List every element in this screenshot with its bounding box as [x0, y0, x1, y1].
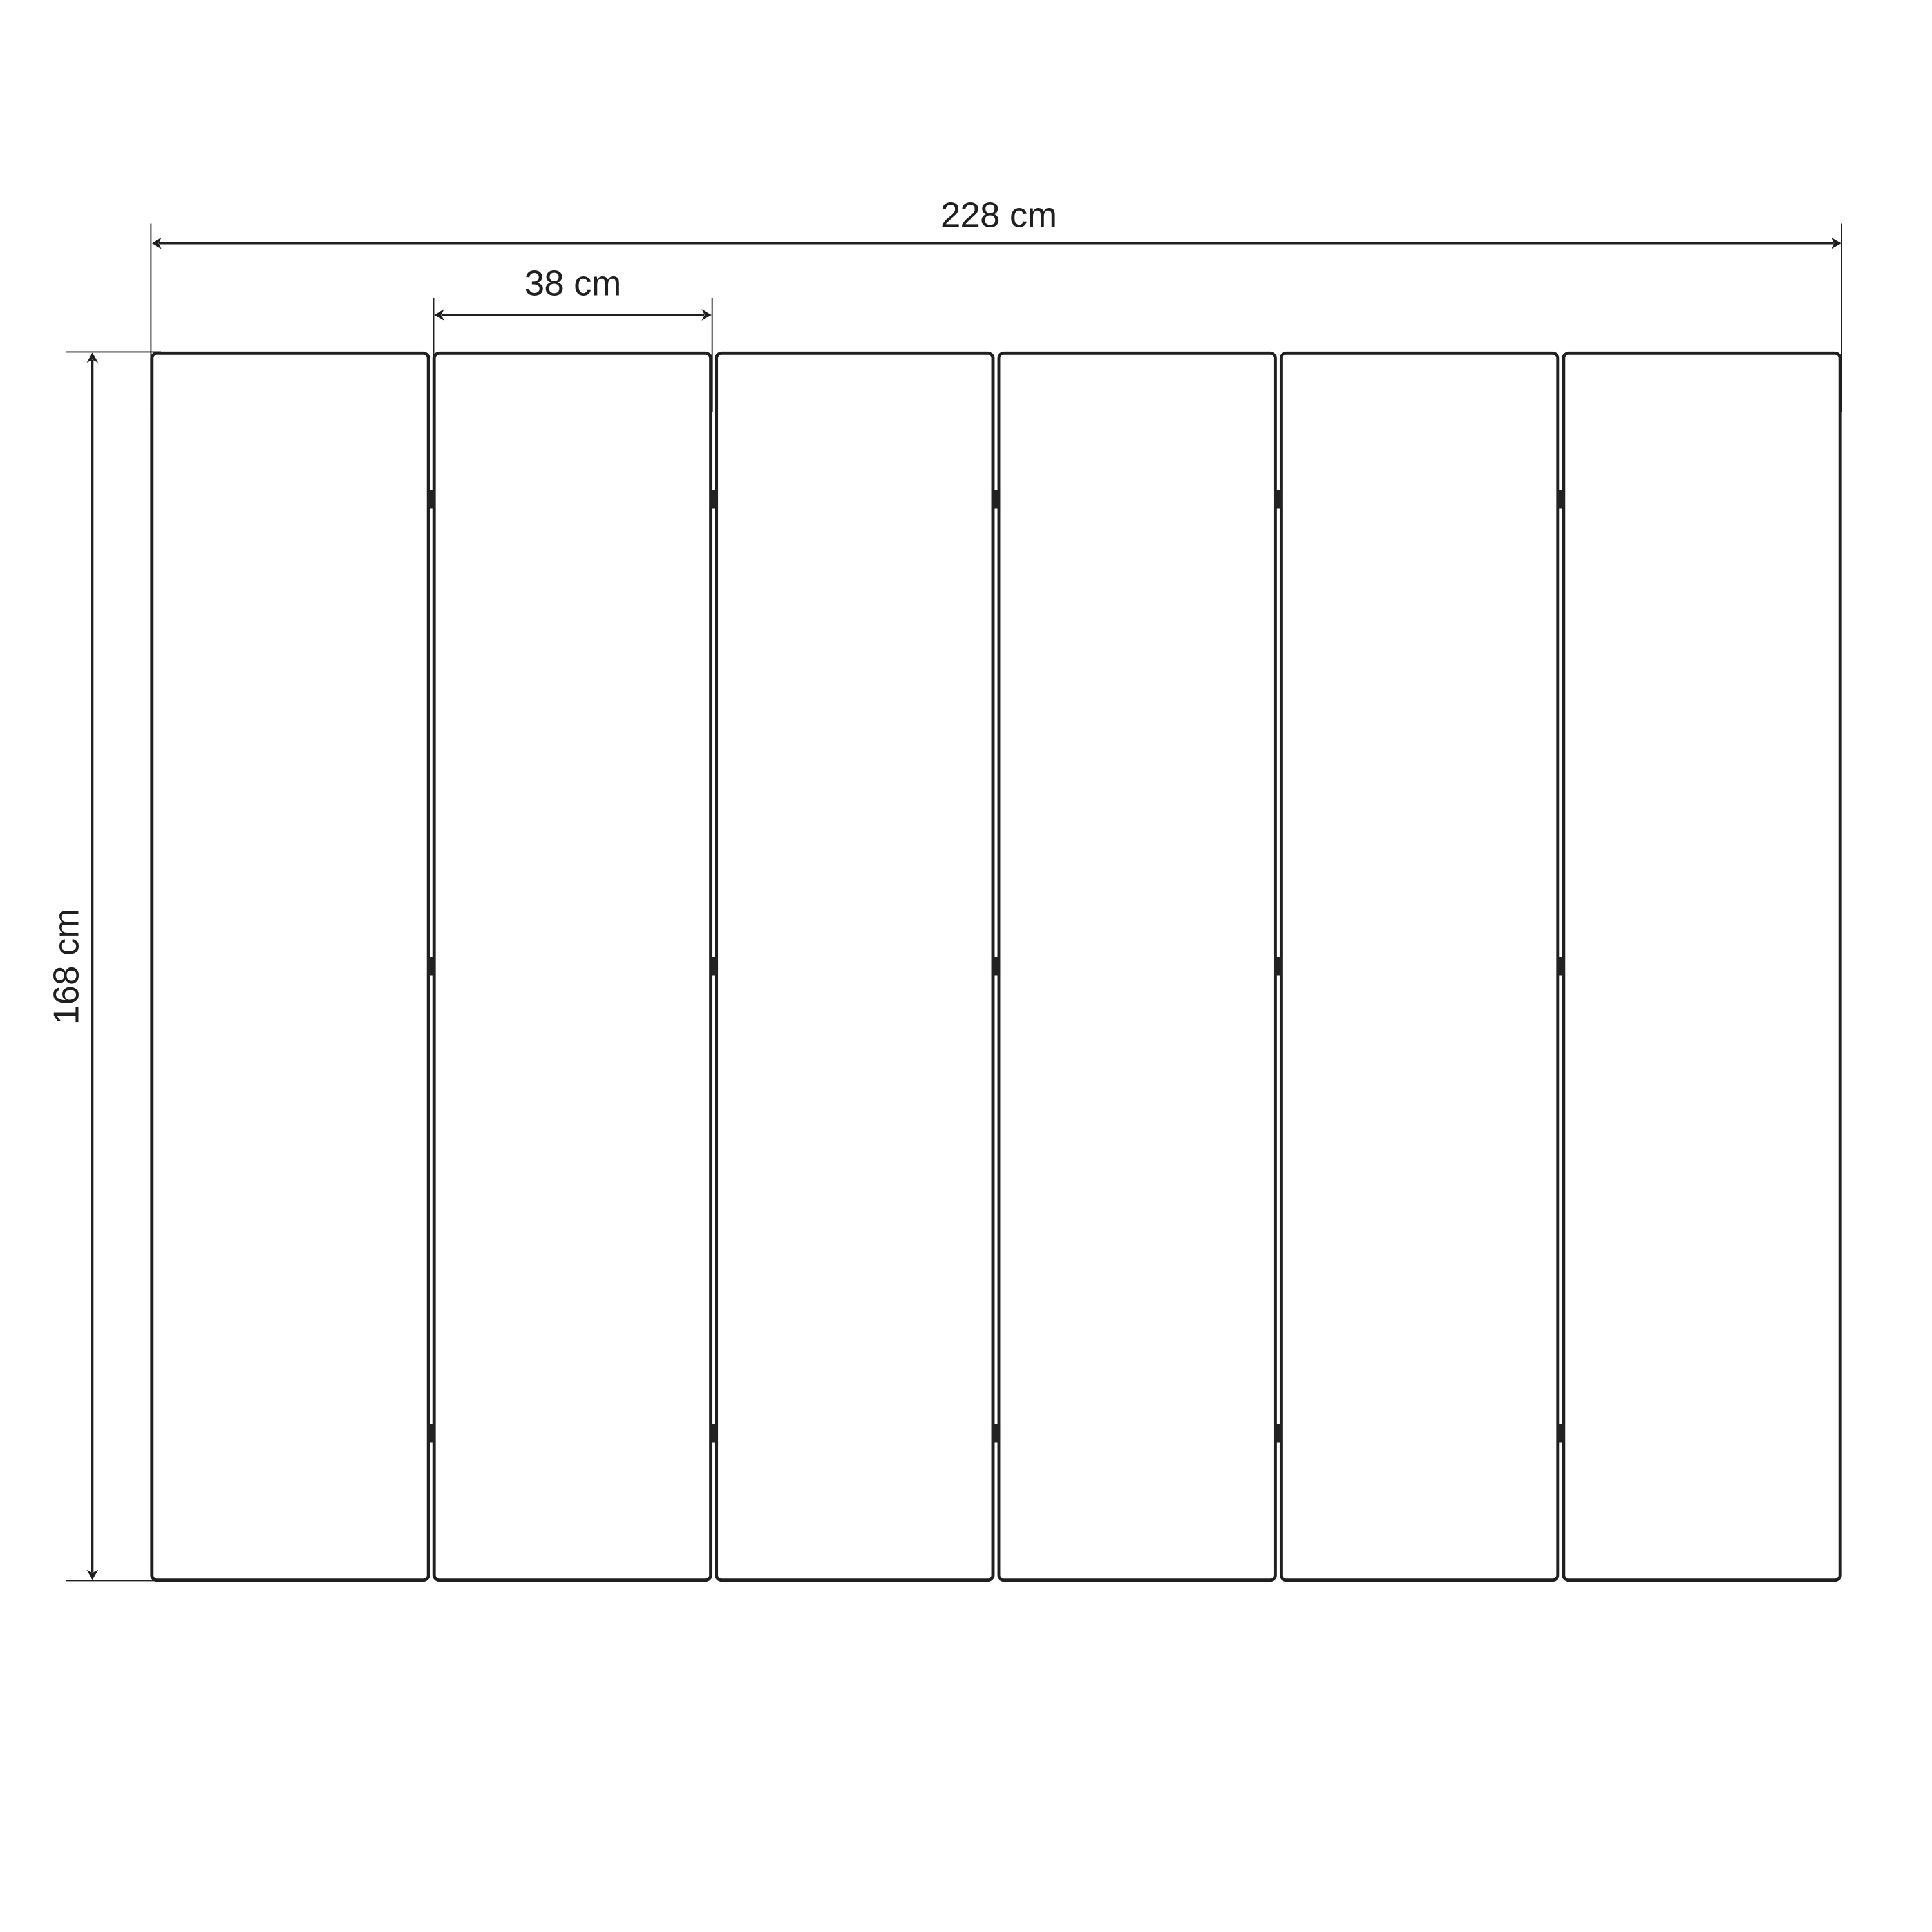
- svg-text:168 cm: 168 cm: [46, 909, 86, 1025]
- svg-text:38 cm: 38 cm: [525, 263, 621, 303]
- svg-text:228 cm: 228 cm: [941, 195, 1057, 235]
